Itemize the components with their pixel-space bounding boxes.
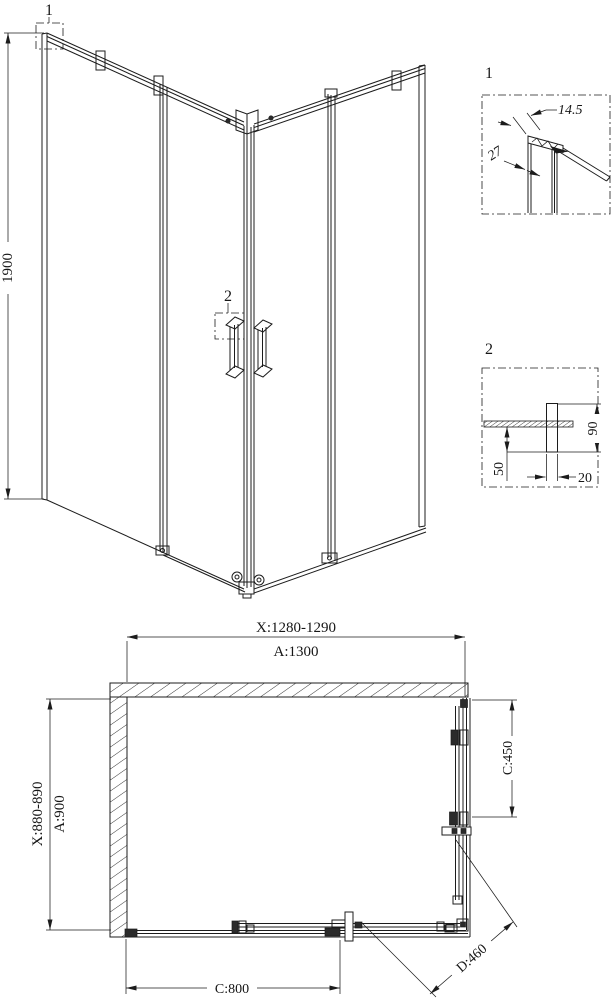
top-rail-left <box>47 33 244 130</box>
shower-enclosure-technical-drawing: 1 2 1900 1 <box>0 0 615 1000</box>
bottom-rail-left <box>47 500 245 592</box>
detail-2-width-dimension: 20 <box>527 454 592 486</box>
height-dim-label: 1900 <box>0 253 16 283</box>
detail-1-depth-dimension: 27 <box>485 143 540 176</box>
handle-knob-section <box>547 404 558 453</box>
detail-2-label: 2 <box>485 341 493 358</box>
detail-1-label: 1 <box>485 65 493 82</box>
top-wall-hatched <box>110 683 468 697</box>
plan-bottom-door-dim-label: C:800 <box>215 982 249 997</box>
left-door-edge-profile <box>156 84 169 555</box>
left-wall-hatched <box>110 697 127 937</box>
detail-1-width-dim-label: 14.5 <box>558 103 583 118</box>
detail-2-length-dim-label: 90 <box>586 422 601 436</box>
callout-2-label: 2 <box>224 288 232 305</box>
detail-1-depth-dim-label: 27 <box>485 143 506 164</box>
drawing-sheet: 1 2 1900 1 <box>0 0 615 1000</box>
detail-2-view: 2 90 50 20 <box>482 341 604 487</box>
detail-2-inner-dim-label: 50 <box>492 462 507 476</box>
detail-2-inner-dimension: 50 <box>492 427 507 481</box>
right-door-handle <box>254 320 272 377</box>
plan-left-adjust-label: X:880-890 <box>30 782 46 847</box>
plan-view: X:1280-1290 A:1300 X:880-890 A:900 C:450… <box>30 620 520 997</box>
detail-2-width-dim-label: 20 <box>578 471 592 486</box>
detail-1-width-dimension: 14.5 <box>498 103 583 134</box>
plan-right-door-dimension: C:450 <box>472 700 520 817</box>
detail-2-length-dimension: 90 <box>507 404 604 452</box>
plan-left-total-label: A:900 <box>52 795 68 833</box>
bottom-rail-right <box>254 528 426 593</box>
right-panel-outer-edge <box>419 65 425 527</box>
plan-diagonal-dimension: D:460 <box>363 840 517 997</box>
plan-frame-lines <box>127 698 470 937</box>
height-dimension: 1900 <box>0 33 44 499</box>
bottom-rollers <box>232 572 264 598</box>
detail-1-view: 1 14.5 27 <box>482 65 610 214</box>
plan-bottom-door-dimension: C:800 <box>126 939 340 997</box>
iso-view: 1 2 1900 <box>0 2 426 598</box>
top-rail-right <box>254 65 425 132</box>
bottom-door-handle-plan <box>345 912 353 941</box>
glass-section-strip <box>484 421 573 427</box>
left-wall-profile <box>42 33 47 500</box>
callout-1-label: 1 <box>45 2 53 19</box>
left-door-handle <box>226 317 244 378</box>
plan-left-dimension: X:880-890 A:900 <box>30 699 111 930</box>
plan-right-door-dim-label: C:450 <box>501 741 516 775</box>
plan-top-adjust-label: X:1280-1290 <box>256 620 336 636</box>
plan-top-total-label: A:1300 <box>274 644 319 660</box>
right-door-edge-profile <box>322 89 337 563</box>
detail-1-profile-section <box>528 136 610 213</box>
